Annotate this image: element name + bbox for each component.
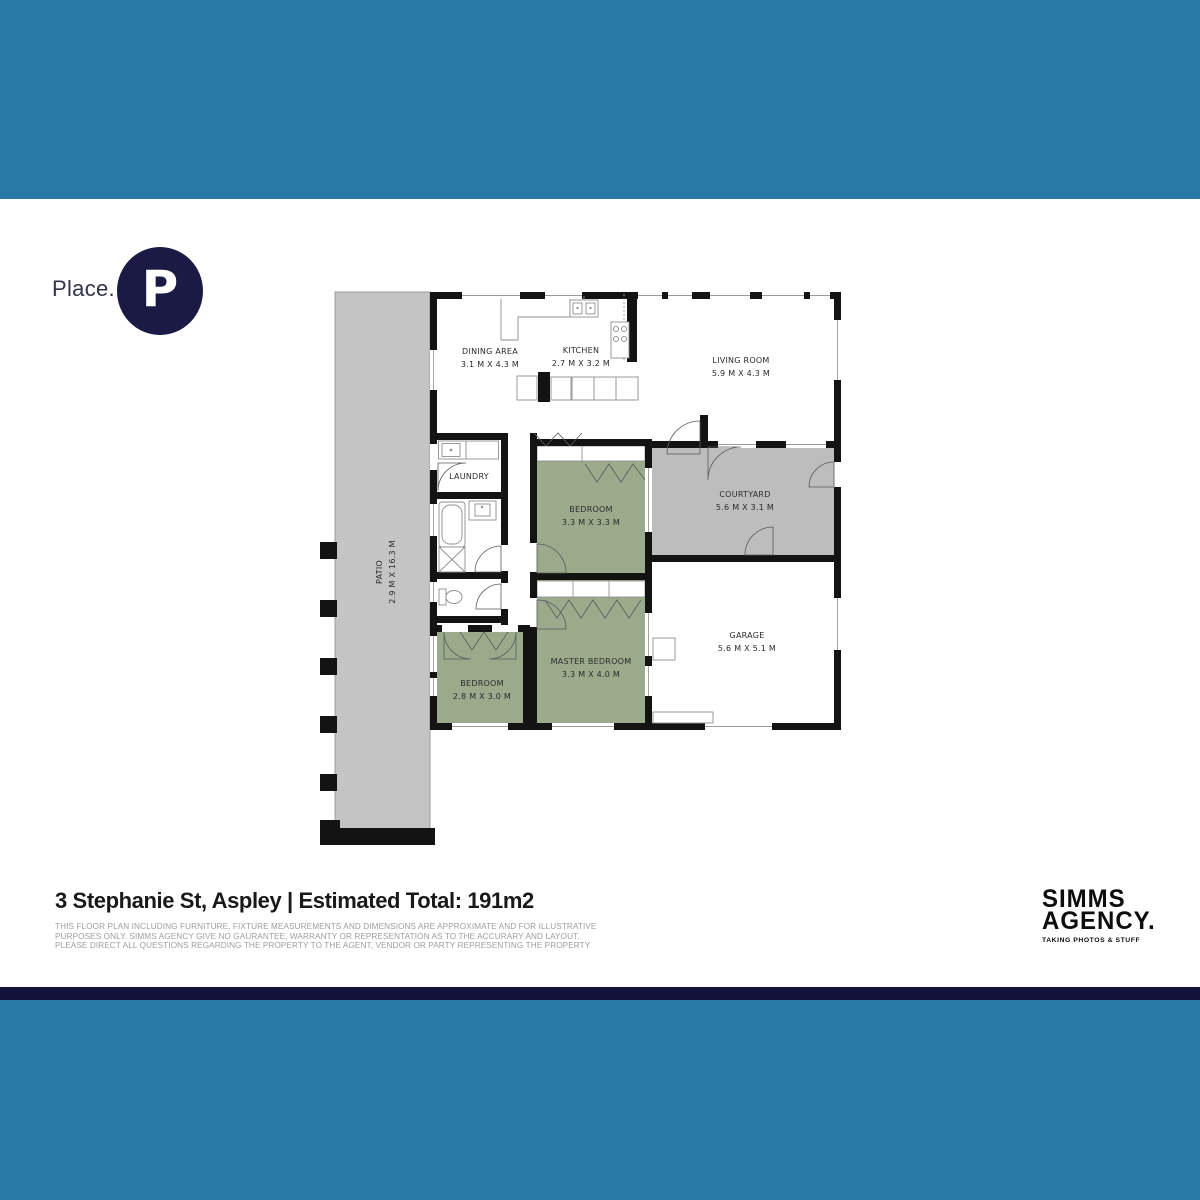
agency-logo: SIMMS AGENCY. TAKING PHOTOS & STUFF (1042, 888, 1156, 944)
kitchen-cabinet (517, 376, 537, 400)
room-label-master: MASTER BEDROOM (551, 657, 632, 666)
shower-icon (439, 547, 465, 572)
place-logo-letter: P (142, 260, 179, 318)
room-dims-patio: 2.9 M X 16.3 M (388, 540, 397, 604)
agency-tagline: TAKING PHOTOS & STUFF (1042, 937, 1156, 944)
bathroom-sink-icon (469, 501, 496, 520)
patio-bottom-wall (322, 828, 435, 845)
room-label-dining: DINING AREA (462, 347, 518, 356)
room-label-laundry: LAUNDRY (449, 472, 489, 481)
room-dims-courtyard: 5.6 M X 3.1 M (716, 503, 774, 512)
kitchen-bench (572, 377, 638, 400)
room-label-courtyard: COURTYARD (719, 490, 770, 499)
room-dims-living: 5.9 M X 4.3 M (712, 369, 770, 378)
room-dims-bedroom2: 2.8 M X 3.0 M (453, 692, 511, 701)
bathtub-icon (439, 502, 465, 547)
master-wardrobe (537, 581, 645, 597)
room-label-bedroom1: BEDROOM (569, 505, 613, 514)
bottom-band (0, 1000, 1200, 1200)
garage-step (653, 712, 713, 723)
courtyard-floor (650, 444, 839, 557)
room-label-kitchen: KITCHEN (563, 346, 599, 355)
toilet-icon (439, 589, 462, 605)
room-label-patio: PATIO (375, 560, 384, 584)
master-bedroom-floor (535, 579, 647, 725)
room-dims-bedroom1: 3.3 M X 3.3 M (562, 518, 620, 527)
bedroom1-wardrobe (537, 446, 645, 461)
room-label-living: LIVING ROOM (712, 356, 769, 365)
room-dims-garage: 5.6 M X 5.1 M (718, 644, 776, 653)
room-dims-dining: 3.1 M X 4.3 M (461, 360, 519, 369)
place-logo-circle: P (117, 247, 203, 335)
place-wordmark: Place. (52, 276, 115, 302)
room-label-bedroom2: BEDROOM (460, 679, 504, 688)
stove-icon (611, 322, 629, 358)
hot-water-unit (653, 638, 675, 660)
kitchen-island (551, 377, 571, 400)
floorplan: PATIO 2.9 M X 16.3 M DINING AREA 3.1 M X… (320, 280, 850, 850)
agency-name-line2: AGENCY. (1042, 910, 1156, 933)
bottom-navy-stripe (0, 987, 1200, 1000)
laundry-sink-unit (439, 441, 499, 459)
room-dims-kitchen: 2.7 M X 3.2 M (552, 359, 610, 368)
room-dims-master: 3.3 M X 4.0 M (562, 670, 620, 679)
top-band (0, 0, 1200, 199)
address-title: 3 Stephanie St, Aspley | Estimated Total… (55, 888, 534, 914)
disclaimer-text: THIS FLOOR PLAN INCLUDING FURNITURE, FIX… (55, 922, 607, 951)
bedroom2-floor (437, 625, 532, 725)
room-label-garage: GARAGE (730, 631, 765, 640)
